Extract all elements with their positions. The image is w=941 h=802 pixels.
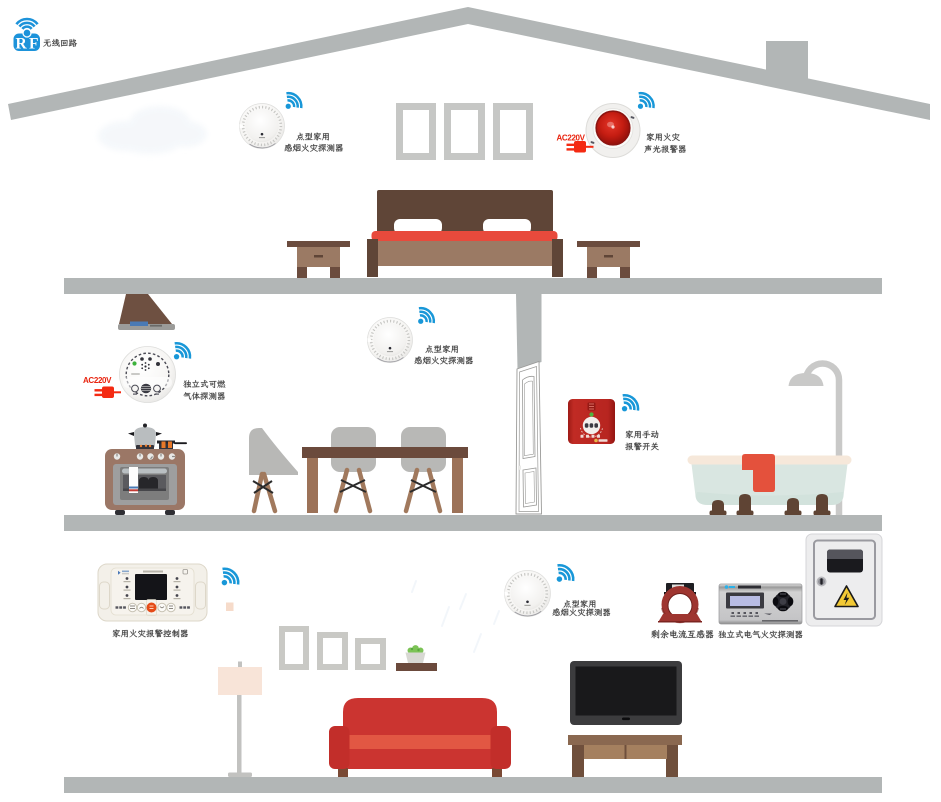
svg-text:F: F: [29, 36, 38, 53]
svg-text:R: R: [16, 36, 28, 53]
svg-text:AC220V: AC220V: [83, 376, 112, 385]
